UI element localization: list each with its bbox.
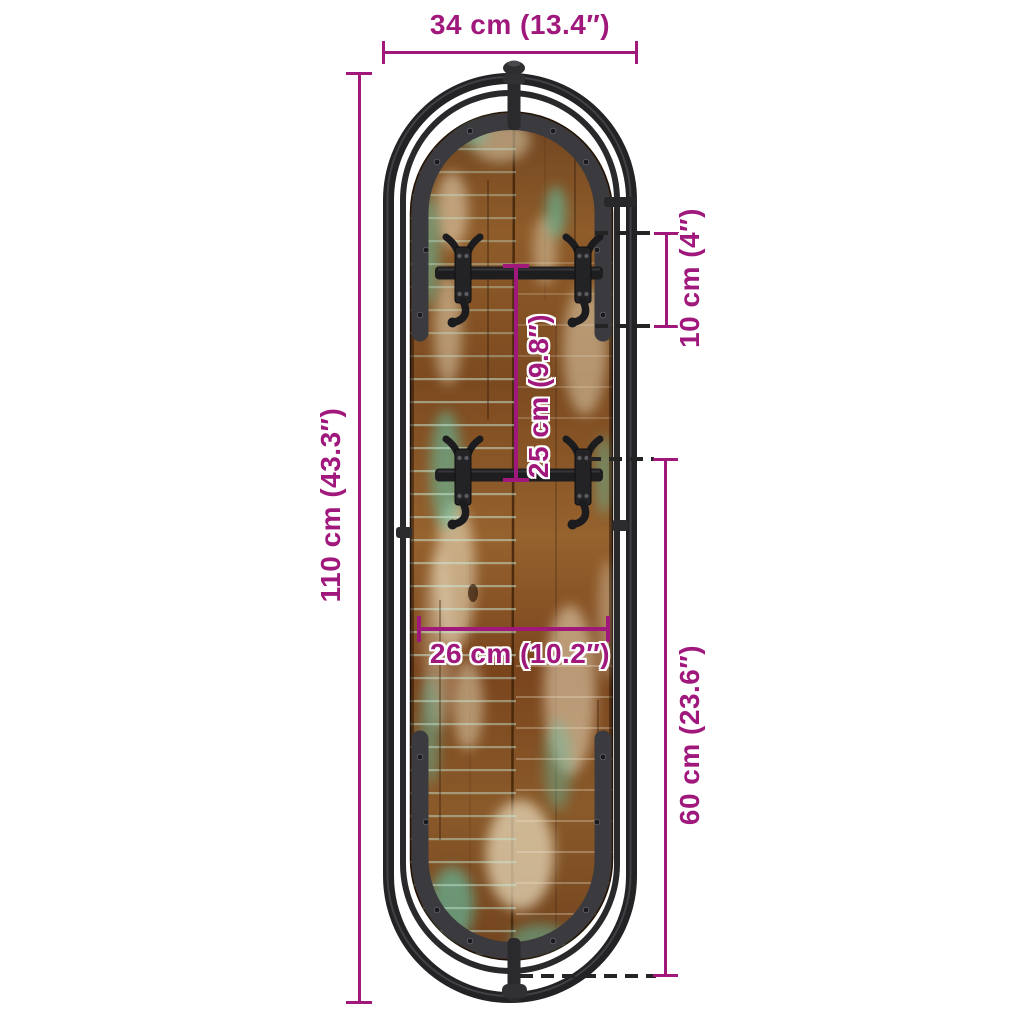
dimension-line [418,627,610,631]
dashed-guide-line [588,457,654,461]
frame-board-clip-mid-right [612,520,628,531]
dimension-tick [503,478,529,482]
dimension-label: 110 cm (43.3″) [315,408,347,603]
wood-board [410,112,618,960]
dimension-tick [417,616,421,642]
dimension-line [665,233,668,327]
dimension-tick [653,458,678,461]
dimension-line [514,266,518,480]
dimension-label: 60 cm (23.6″) [674,645,706,825]
dimension-label: 34 cm (13.4″) [430,9,610,41]
dimension-label: 25 cm (9.8″) [523,314,555,478]
frame-board-clip-upper-right [604,197,637,207]
dimension-label: 10 cm (4″) [674,208,706,348]
dimension-tick [346,1001,372,1004]
dimension-tick [503,264,529,268]
coat-rack-product-image [0,0,1024,1024]
dashed-guide-line [520,974,656,978]
dimension-tick [346,72,372,75]
dimension-line [383,51,637,54]
dashed-guide-line [595,324,657,328]
dimension-tick [635,41,638,64]
dashed-guide-line [595,231,657,235]
dimension-tick [382,41,385,64]
dimension-tick [653,974,678,977]
dimension-line [664,459,667,977]
product-dimension-diagram: 34 cm (13.4″) 110 cm (43.3″) 10 cm (4″) … [0,0,1024,1024]
frame-board-clip-mid-left [396,527,412,538]
dimension-label: 26 cm (10.2″) [430,638,610,670]
dimension-line [358,73,361,1003]
